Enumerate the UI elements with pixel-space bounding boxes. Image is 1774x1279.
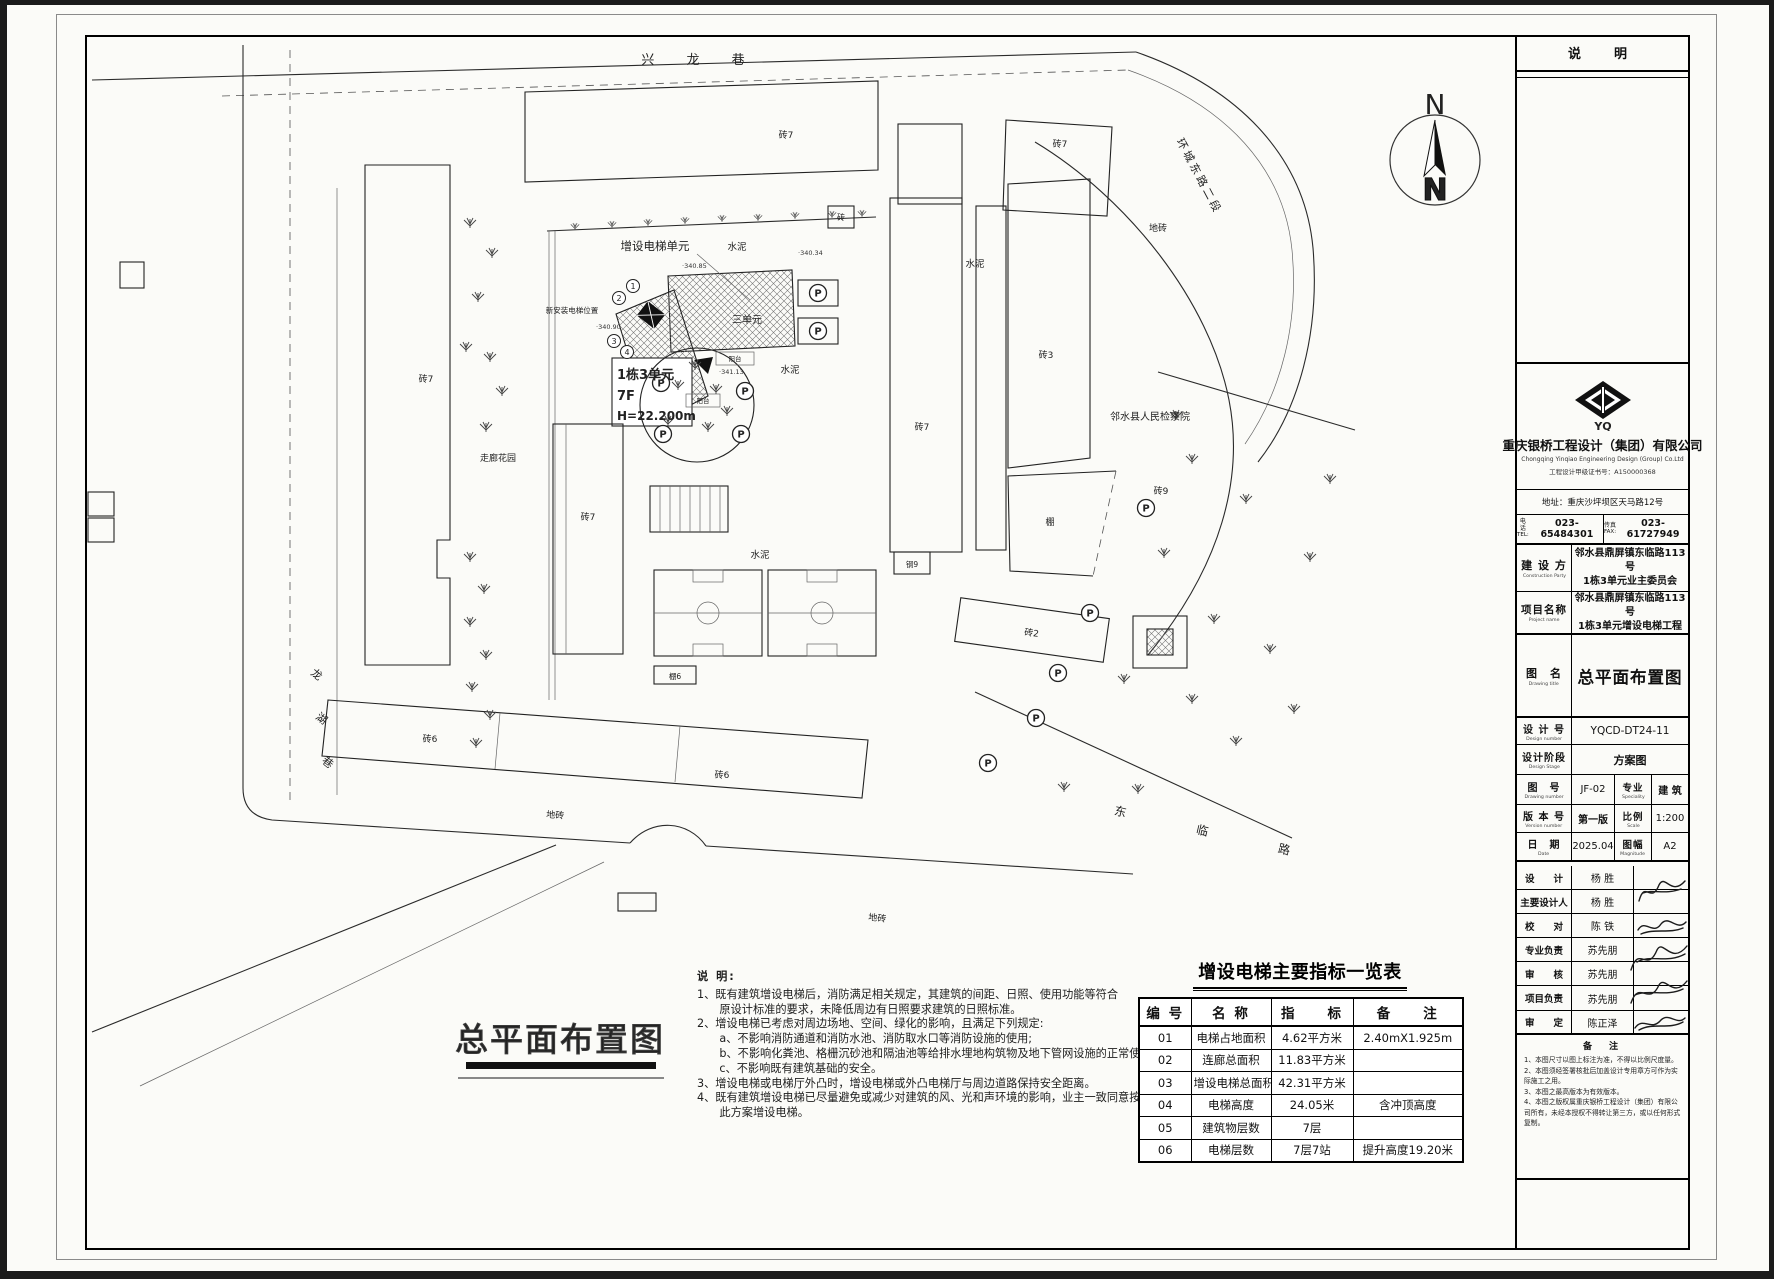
row-label-zh: 建 设 方: [1521, 557, 1567, 573]
table-cell: 2.40mX1.925m: [1353, 1026, 1463, 1049]
label-balcony: 阳台: [697, 396, 710, 405]
elevation-label: ·340.34: [798, 249, 823, 257]
sig-name: 杨 胜: [1591, 870, 1614, 885]
svg-text:3: 3: [611, 337, 616, 346]
remark-line: 2、本图须经签署核批后加盖设计专用章方可作为实际施工之用。: [1524, 1066, 1681, 1087]
table-cell: 电梯高度: [1191, 1094, 1271, 1117]
table-row: 06电梯层数7层7站提升高度19.20米: [1139, 1139, 1463, 1162]
construction-party-row: 建 设 方 Construction Party 邻水县鼎屏镇东临路113号 1…: [1517, 545, 1688, 592]
row-label-en: Speciality: [1622, 794, 1645, 799]
sig-role: 设 计: [1525, 871, 1563, 885]
table-row: 03增设电梯总面积42.31平方米: [1139, 1072, 1463, 1095]
table-cell: 电梯占地面积: [1191, 1026, 1271, 1049]
table-cell: 01: [1139, 1026, 1191, 1049]
north-compass-icon: N N: [1390, 88, 1480, 208]
building-label: 砖2: [1023, 626, 1039, 640]
row-label-en: Design Stage: [1528, 764, 1559, 769]
sig-role: 专业负责: [1525, 943, 1563, 957]
row-label-zh: 版 本 号: [1523, 808, 1565, 823]
row-label-zh: 设计阶段: [1522, 749, 1566, 764]
label-floor-tile: 地砖: [546, 808, 565, 821]
construction-value: 1栋3单元业主委员会: [1583, 575, 1677, 589]
label-brick9: 砖9: [1154, 485, 1169, 497]
table-row: 01电梯占地面积4.62平方米2.40mX1.925m: [1139, 1026, 1463, 1049]
label-cement: 水泥: [780, 364, 800, 376]
company-name-cn: 重庆银桥工程设计（集团）有限公司: [1503, 435, 1703, 454]
sig-name: 苏先朋: [1588, 991, 1618, 1006]
construction-value: 邻水县鼎屏镇东临路113号: [1572, 547, 1688, 575]
sig-role: 审 定: [1525, 1015, 1563, 1029]
table-cell: 03: [1139, 1072, 1191, 1095]
tel-fax-row: 电话 TEL: 023-65484301 传真 FAX: 023-6172794…: [1517, 515, 1688, 545]
row-label-zh: 比例: [1622, 809, 1643, 823]
elevation-label: ·341.13: [719, 368, 744, 376]
table-cell: 05: [1139, 1117, 1191, 1140]
sig-name: 苏先朋: [1588, 966, 1618, 981]
row-label-en: Drawing title: [1529, 681, 1559, 686]
indicator-table: 编 号 名 称 指 标 备 注 01电梯占地面积4.62平方米2.40mX1.9…: [1138, 997, 1464, 1163]
row-label-zh: 项目名称: [1521, 602, 1567, 617]
label-cement: 水泥: [965, 258, 985, 270]
sig-name: 陈正泽: [1588, 1015, 1618, 1030]
scan-edge-top: [0, 0, 1774, 5]
title-block: 说 明 YQ 重庆银桥工程设计（集团）有限公司 Chongqing Yinqia…: [1515, 35, 1688, 1248]
project-value: 1栋3单元增设电梯工程: [1578, 620, 1682, 634]
fax-label-en: FAX:: [1604, 529, 1616, 536]
table-cell: 7层: [1271, 1117, 1353, 1140]
sig-role: 主要设计人: [1520, 895, 1568, 909]
label-add-elevator-unit: 增设电梯单元: [621, 239, 690, 253]
sig-role: 审 核: [1525, 967, 1563, 981]
row-label-en: Version number: [1526, 823, 1563, 828]
row-label-en: Construction Party: [1522, 573, 1565, 578]
label-balcony: 阳台: [729, 354, 742, 363]
svg-text:4: 4: [624, 348, 629, 357]
svg-text:1: 1: [630, 282, 635, 291]
table-cell: 4.62平方米: [1271, 1026, 1353, 1049]
sig-name: 苏先朋: [1588, 942, 1618, 957]
label-prosecutor: 邻水县人民检察院: [1110, 410, 1190, 423]
row-label-zh: 图 名: [1526, 665, 1562, 681]
road-label-xinglong: 兴 龙 巷: [641, 53, 758, 68]
grass-symbols: [460, 210, 1336, 794]
basketball-courts: [654, 570, 876, 656]
indicator-table-rows: 01电梯占地面积4.62平方米2.40mX1.925m02连廊总面积11.83平…: [1139, 1026, 1463, 1162]
road-label-longhu: 湖: [313, 710, 330, 727]
signature-scribble: [1635, 871, 1689, 909]
remark-line: 4、本图之版权属重庆银桥工程设计（集团）有限公司所有，未经本授权不得转让第三方，…: [1524, 1097, 1681, 1129]
label-floor-tile: 地砖: [1149, 222, 1167, 234]
road-label-donglin: 东 临 路: [1113, 803, 1321, 865]
label-shed: 棚: [1045, 516, 1054, 528]
speciality-value: 建 筑: [1658, 782, 1681, 797]
table-cell: 提升高度19.20米: [1353, 1139, 1463, 1162]
scanned-drawing-page: { "sheet": { "note_panel_header": "说 明",…: [0, 0, 1774, 1279]
table-cell: 电梯层数: [1191, 1139, 1271, 1162]
table-cell: 42.31平方米: [1271, 1072, 1353, 1095]
label-brick6: 砖6: [423, 733, 438, 745]
remark-line: 1、本图尺寸以图上标注为准，不得以比例尺度量。: [1524, 1055, 1681, 1066]
table-cell: [1353, 1049, 1463, 1072]
table-cell: 06: [1139, 1139, 1191, 1162]
note-panel-empty: [1517, 78, 1688, 364]
label-building-height: H=22.200m: [617, 409, 696, 423]
version-value: 第一版: [1578, 811, 1608, 826]
drawing-name-row: 图 名 Drawing title 总平面布置图: [1517, 635, 1688, 718]
design-stage-row: 设计阶段 Design Stage 方案图: [1517, 745, 1688, 775]
elevation-label: ·340.85: [682, 262, 707, 270]
road-label-huancheng: 环城东路二段: [1174, 136, 1226, 217]
svg-text:YQ: YQ: [1593, 420, 1611, 431]
label-brick7: 砖7: [1053, 138, 1068, 150]
label-cement: 水泥: [750, 549, 770, 561]
compass-n-outline: N: [1422, 173, 1447, 208]
row-label-en: Project name: [1529, 617, 1560, 622]
road-label-longhu: 龙: [308, 666, 325, 683]
table-cell: [1353, 1117, 1463, 1140]
table-cell: 7层7站: [1271, 1139, 1353, 1162]
project-name-row: 项目名称 Project name 邻水县鼎屏镇东临路113号 1栋3单元增设电…: [1517, 592, 1688, 635]
label-building-floors: 7F: [617, 389, 635, 404]
label-brick7: 砖7: [915, 421, 930, 433]
table-cell: [1353, 1072, 1463, 1095]
label-brick3: 砖3: [1039, 349, 1054, 361]
label-brick7: 砖7: [419, 373, 434, 385]
title-underline: [1193, 987, 1407, 991]
company-name-en: Chongqing Yinqiao Engineering Design (Gr…: [1521, 456, 1683, 463]
row-label-en: Scale: [1627, 823, 1640, 828]
format-value: A2: [1663, 841, 1676, 852]
table-cell: 增设电梯总面积: [1191, 1072, 1271, 1095]
label-brick6: 砖6: [715, 769, 730, 781]
table-cell: 含冲顶高度: [1353, 1094, 1463, 1117]
company-cert: 工程设计甲级证书号：A150000368: [1549, 466, 1656, 476]
table-header: 备 注: [1353, 998, 1463, 1026]
label-corridor-garden: 走廊花园: [480, 452, 516, 464]
row-label-zh: 设 计 号: [1523, 721, 1565, 736]
design-stage-value: 方案图: [1614, 752, 1647, 768]
table-cell: 24.05米: [1271, 1094, 1353, 1117]
row-label-zh: 图 号: [1528, 779, 1561, 794]
plan-title: 总平面布置图: [455, 1020, 665, 1078]
company-address-row: 地址：重庆沙坪坝区天马路12号: [1517, 490, 1688, 515]
company-block: YQ 重庆银桥工程设计（集团）有限公司 Chongqing Yinqiao En…: [1517, 367, 1688, 490]
table-row: 02连廊总面积11.83平方米: [1139, 1049, 1463, 1072]
drawing-name-value: 总平面布置图: [1578, 664, 1683, 688]
label-floor-tile: 地砖: [868, 911, 887, 925]
sig-role: 校 对: [1525, 919, 1563, 933]
signature-scribble: [1627, 938, 1691, 980]
drawing-number-row: 图 号 Drawing number JF-02 专业 Speciality 建…: [1517, 775, 1688, 805]
row-label-en: Magnitude: [1621, 851, 1646, 856]
label-brick7: 砖7: [581, 511, 596, 523]
label-unit3: 三单元: [732, 314, 762, 326]
fax-number: 023-61727949: [1618, 518, 1688, 540]
table-cell: 建筑物层数: [1191, 1117, 1271, 1140]
signature-scribble: [1627, 975, 1691, 1013]
sig-name: 杨 胜: [1591, 894, 1614, 909]
buildings: 砖2: [88, 81, 1187, 911]
signature-scribble: [1635, 916, 1689, 938]
table-cell: 02: [1139, 1049, 1191, 1072]
row-label-en: Date: [1538, 851, 1549, 856]
row-label-zh: 日 期: [1528, 836, 1561, 851]
table-header-row: 编 号 名 称 指 标 备 注: [1139, 998, 1463, 1026]
design-number-row: 设 计 号 Design number YQCD-DT24-11: [1517, 718, 1688, 745]
row-label-en: Design number: [1526, 736, 1562, 741]
table-header: 编 号: [1139, 998, 1191, 1026]
scan-edge-right: [1769, 0, 1774, 1279]
table-cell: 04: [1139, 1094, 1191, 1117]
date-value: 2025.04: [1572, 841, 1613, 852]
company-logo: YQ: [1573, 379, 1633, 431]
remark-line: 3、本图之最高版本为有效版本。: [1524, 1087, 1681, 1098]
table-header: 名 称: [1191, 998, 1271, 1026]
table-header: 指 标: [1271, 998, 1353, 1026]
sig-name: 陈 铁: [1591, 918, 1614, 933]
svg-text:2: 2: [616, 294, 621, 303]
version-row: 版 本 号 Version number 第一版 比例 Scale 1:200: [1517, 805, 1688, 833]
project-value: 邻水县鼎屏镇东临路113号: [1572, 592, 1688, 620]
tel-label-en: TEL:: [1517, 532, 1529, 539]
row-label-zh: 专业: [1622, 780, 1643, 794]
label-cement: 水泥: [727, 241, 747, 253]
table-row: 05建筑物层数7层: [1139, 1117, 1463, 1140]
label-brick: 砖: [837, 212, 845, 222]
elevation-label: ·340.90: [596, 323, 621, 331]
note-panel-header: 说 明: [1517, 35, 1688, 72]
scan-edge-left: [0, 0, 7, 1279]
drawing-number-value: JF-02: [1580, 784, 1605, 795]
sig-role: 项目负责: [1525, 991, 1563, 1005]
label-brick7: 砖7: [779, 129, 794, 141]
date-row: 日 期 Date 2025.04 图幅 Magnitude A2: [1517, 833, 1688, 862]
label-shed6: 棚6: [669, 671, 681, 681]
table-cell: 连廊总面积: [1191, 1049, 1271, 1072]
scale-value: 1:200: [1656, 813, 1685, 824]
compass-n-label: N: [1425, 88, 1446, 121]
remarks-block: 备 注 1、本图尺寸以图上标注为准，不得以比例尺度量。2、本图须经签署核批后加盖…: [1517, 1035, 1688, 1180]
tel-label-zh: 电话: [1517, 519, 1529, 532]
label-steel9: 钢9: [906, 559, 918, 569]
row-label-zh: 图幅: [1622, 837, 1643, 851]
roads: [92, 45, 1355, 1086]
table-row: 04电梯高度24.05米含冲顶高度: [1139, 1094, 1463, 1117]
label-new-elevator-pos: 新安装电梯位置: [546, 305, 599, 315]
remarks-header: 备 注: [1524, 1039, 1681, 1052]
tel-number: 023-65484301: [1531, 518, 1603, 540]
scan-edge-bottom: [0, 1271, 1774, 1279]
company-address: 地址：重庆沙坪坝区天马路12号: [1542, 496, 1663, 508]
indicator-table-title: 增设电梯主要指标一览表: [1138, 958, 1462, 984]
stairs: [650, 486, 728, 532]
row-label-en: Drawing number: [1524, 794, 1563, 799]
indicator-table-block: 增设电梯主要指标一览表 编 号 名 称 指 标 备 注 01电梯占地面积4.62…: [1138, 958, 1462, 1163]
signature-scribble: [1631, 1012, 1689, 1034]
table-cell: 11.83平方米: [1271, 1049, 1353, 1072]
plan-title-text: 总平面布置图: [455, 1020, 665, 1059]
label-building-id: 1栋3单元: [617, 367, 674, 383]
remarks-lines: 1、本图尺寸以图上标注为准，不得以比例尺度量。2、本图须经签署核批后加盖设计专用…: [1524, 1055, 1681, 1129]
design-number-value: YQCD-DT24-11: [1591, 725, 1670, 737]
